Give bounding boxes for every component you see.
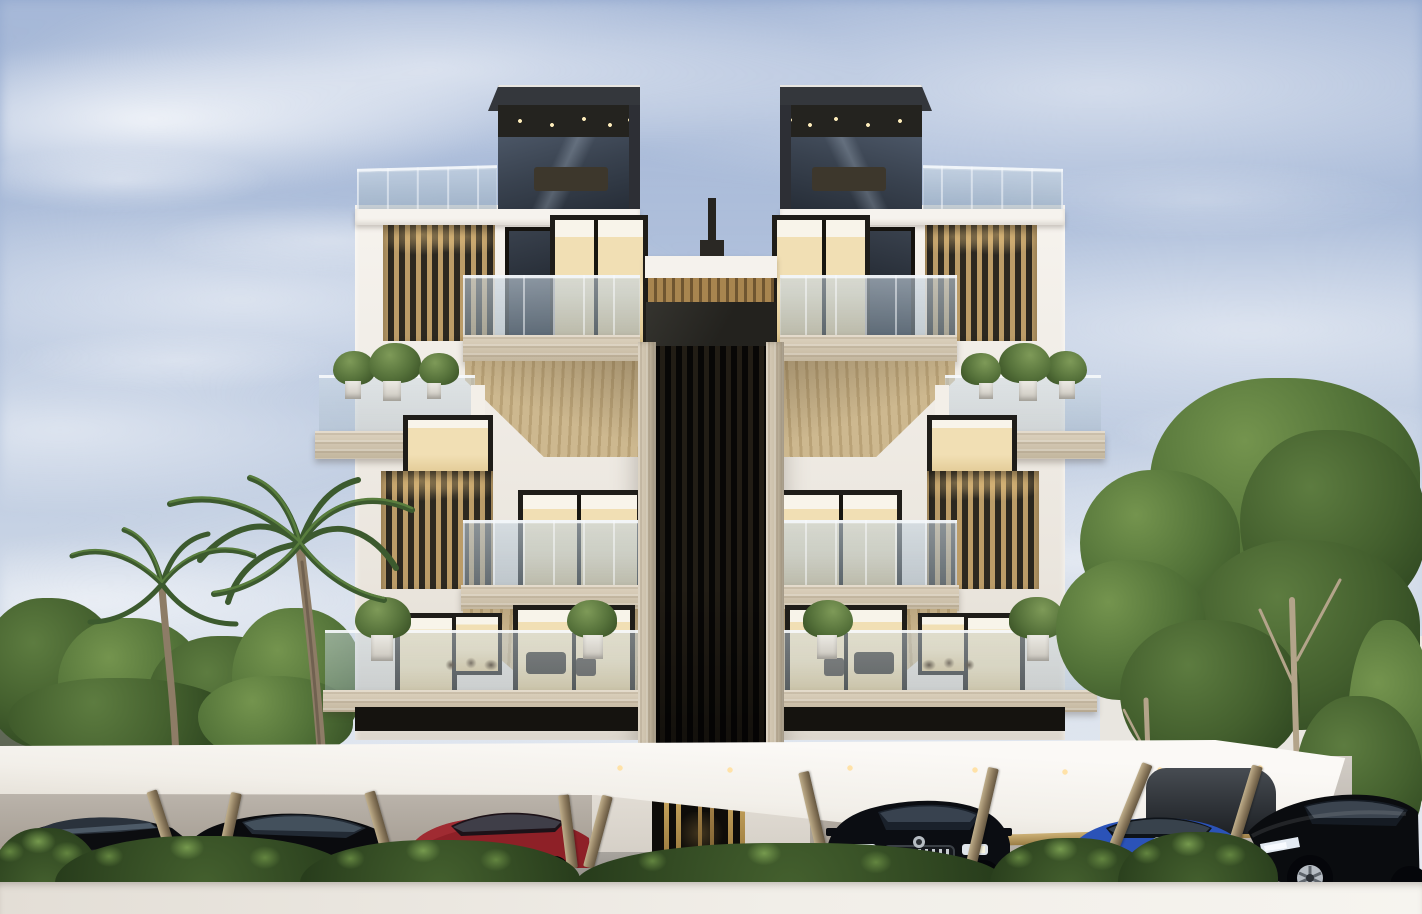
ground-shadow-band <box>780 707 1065 731</box>
rooftop-glass-railing <box>357 165 497 214</box>
rooftop-glass-railing <box>923 165 1063 214</box>
plant-pot <box>1019 381 1037 401</box>
balcony-plant <box>369 343 421 383</box>
balcony-railing-floor3 <box>463 275 640 344</box>
penthouse-ceiling <box>780 105 922 137</box>
balcony-plant <box>999 343 1051 383</box>
core-wood-band <box>648 278 774 304</box>
architectural-rendering <box>0 0 1422 914</box>
terrace-plant <box>803 600 853 638</box>
palm-small <box>72 528 254 760</box>
core-mast-cap <box>700 240 724 256</box>
penthouse-furniture <box>812 167 886 191</box>
penthouse-furniture <box>534 167 608 191</box>
plant-pot <box>1059 381 1075 399</box>
balcony-slab-floor3 <box>780 335 957 362</box>
core-pier-right <box>766 342 784 746</box>
palm-trees <box>28 452 448 764</box>
core-slat-wall <box>654 346 768 746</box>
core-pier-left <box>638 342 656 746</box>
plant-pot <box>383 381 401 401</box>
core-dark-panel <box>646 302 776 348</box>
planter-wall <box>0 882 1422 914</box>
tower-right <box>780 85 1065 740</box>
penthouse-ceiling <box>498 105 640 137</box>
plant-pot <box>583 635 603 659</box>
balcony-plant <box>1045 351 1087 385</box>
balcony-plant <box>961 353 1001 385</box>
plant-pot <box>345 381 361 399</box>
penthouse-side-wall <box>629 105 640 209</box>
balcony-railing-floor2 <box>463 520 640 593</box>
core-bridge-slab <box>645 256 777 278</box>
terrace-plant <box>567 600 617 638</box>
terrace-furniture <box>439 645 505 675</box>
plant-pot <box>979 383 993 399</box>
penthouse-side-wall <box>780 105 791 209</box>
plant-pot <box>427 383 441 399</box>
balcony-slab-floor3 <box>463 335 640 362</box>
balcony-railing-floor3 <box>780 275 957 344</box>
terrace-furniture <box>915 645 981 675</box>
plant-pot <box>817 635 837 659</box>
balcony-railing-floor2 <box>780 520 957 593</box>
balcony-plant <box>419 353 459 385</box>
